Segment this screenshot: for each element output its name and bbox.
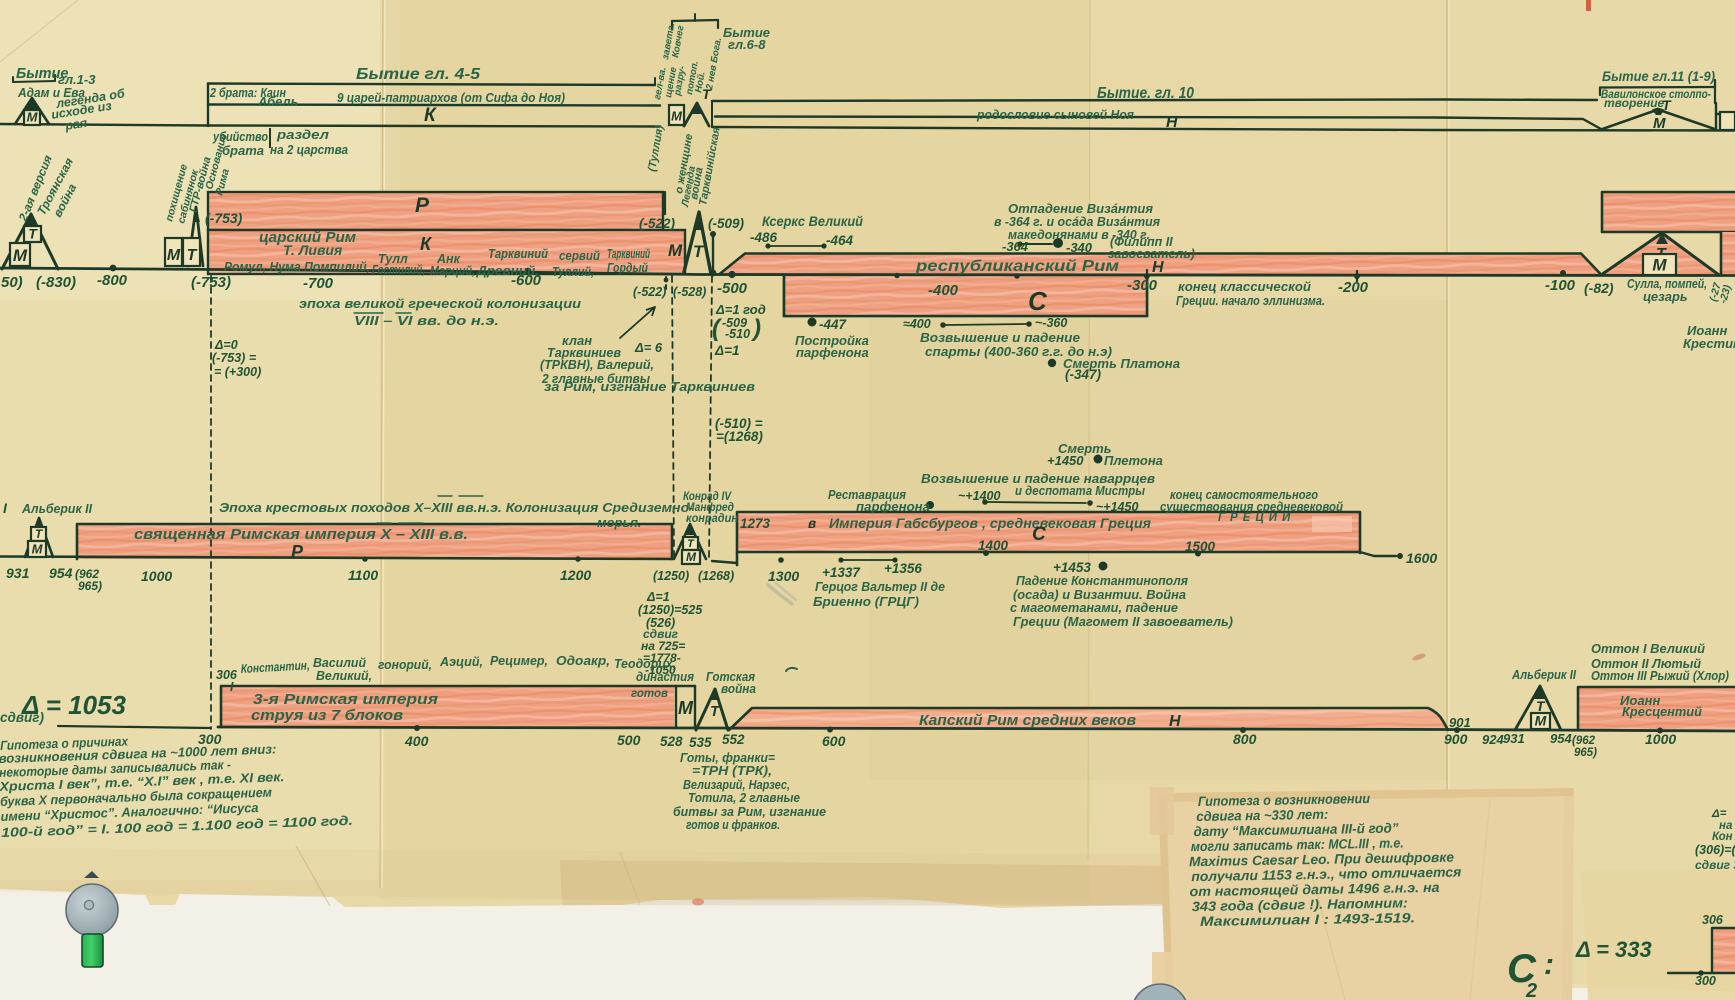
svg-text:Δ=0: Δ=0: [214, 338, 238, 352]
svg-text:800: 800: [1233, 731, 1257, 747]
svg-text::: :: [1544, 948, 1554, 981]
svg-text:война: война: [721, 682, 756, 696]
svg-text:-100: -100: [1545, 277, 1576, 294]
svg-text:М: М: [1653, 115, 1666, 132]
svg-text:священная Римская империя X –: священная Римская империя X – XIII в.в.: [134, 527, 468, 543]
svg-text:Великий,: Великий,: [316, 669, 372, 683]
svg-text:М: М: [1652, 255, 1667, 274]
svg-text:= (+300): = (+300): [214, 365, 261, 379]
svg-text:конец классической: конец классической: [1178, 279, 1311, 294]
svg-text:Одоакр,: Одоакр,: [556, 654, 610, 668]
svg-text:Теодорих,: Теодорих,: [614, 657, 676, 671]
svg-text:брата: брата: [222, 143, 264, 158]
svg-text:за Рим, изгнание Тарквиниев: за Рим, изгнание Тарквиниев: [544, 379, 755, 394]
svg-text:1000: 1000: [141, 568, 172, 584]
svg-text:+1356: +1356: [884, 561, 922, 576]
svg-text:901: 901: [1449, 715, 1471, 730]
svg-text:+1450: +1450: [1047, 453, 1084, 468]
svg-text:раздел: раздел: [276, 127, 329, 142]
svg-text:морья.: морья.: [597, 515, 641, 530]
svg-text:Н: Н: [1166, 114, 1178, 131]
svg-text:(-753): (-753): [191, 274, 231, 291]
svg-text:(-522): (-522): [639, 216, 676, 231]
svg-text:306: 306: [1702, 913, 1724, 927]
svg-text:сдвиг): сдвиг): [0, 710, 44, 725]
svg-text:эпоха великой греческой колони: эпоха великой греческой колонизации: [299, 296, 581, 311]
svg-text:М: М: [32, 541, 44, 556]
svg-text:-700: -700: [303, 275, 334, 292]
svg-text:Крестите: Крестите: [1683, 336, 1735, 351]
svg-text:(962: (962: [1572, 735, 1596, 747]
svg-text:Туллий,: Туллий,: [552, 265, 594, 279]
svg-text:Герцог Вальтер II де: Герцог Вальтер II де: [815, 579, 945, 594]
svg-text:1100: 1100: [348, 567, 378, 583]
svg-text:Ромул, Нума Помпилий,: Ромул, Нума Помпилий,: [224, 259, 370, 274]
svg-text:Т. Ливия: Т. Ливия: [283, 242, 342, 258]
svg-text:Н: Н: [1169, 713, 1181, 730]
svg-text:I: I: [230, 680, 234, 694]
svg-text:=(1268): =(1268): [716, 429, 763, 444]
svg-text:-447: -447: [819, 317, 848, 332]
svg-text:Δ= 6: Δ= 6: [634, 340, 663, 355]
svg-text:Оттон I Великий: Оттон I Великий: [1591, 641, 1705, 656]
svg-text:-500: -500: [717, 280, 748, 297]
svg-text:республиканский Рим: республиканский Рим: [915, 258, 1120, 275]
svg-text:Бытие. гл. 10: Бытие. гл. 10: [1097, 85, 1194, 102]
svg-text:-600: -600: [511, 272, 542, 289]
svg-text:сдвиг 3: сдвиг 3: [1695, 858, 1735, 872]
svg-text:М: М: [13, 246, 28, 265]
svg-text:1200: 1200: [560, 567, 591, 583]
svg-text:Δ = 333: Δ = 333: [1575, 937, 1652, 962]
svg-text:-800: -800: [97, 272, 128, 289]
svg-text:Т: Т: [28, 225, 38, 241]
svg-text:552: 552: [722, 732, 745, 747]
svg-text:гл.6-8: гл.6-8: [728, 37, 766, 52]
svg-text:-300: -300: [1127, 277, 1158, 294]
svg-text:конрадин: конрадин: [686, 511, 739, 525]
svg-text:3-я Римская империя: 3-я Римская империя: [253, 691, 438, 708]
svg-text:954: 954: [1550, 731, 1572, 746]
svg-text:готов и франков.: готов и франков.: [686, 817, 780, 832]
svg-text:М: М: [1535, 712, 1547, 728]
svg-text:(1250): (1250): [653, 569, 689, 583]
svg-text:~+1450: ~+1450: [1096, 500, 1138, 514]
svg-text:1273: 1273: [740, 516, 771, 531]
svg-text:-486: -486: [750, 230, 778, 245]
svg-text:Греции. начало эллинизма.: Греции. начало эллинизма.: [1176, 293, 1325, 308]
svg-text:готов: готов: [631, 688, 668, 700]
svg-text:-400: -400: [928, 282, 959, 299]
svg-text:Абель: Абель: [257, 94, 298, 109]
svg-text:Р: Р: [415, 194, 430, 217]
svg-text:на 2 царства: на 2 царства: [270, 142, 348, 157]
svg-text:954: 954: [49, 565, 73, 581]
svg-text:924: 924: [1482, 732, 1504, 747]
svg-text:Кресцентий: Кресцентий: [1622, 704, 1702, 719]
svg-text:VIII – VI вв. до н.э.: VIII – VI вв. до н.э.: [354, 313, 499, 328]
svg-text:2: 2: [1525, 980, 1537, 1000]
svg-text:=ТРН (ТРК),: =ТРН (ТРК),: [692, 763, 772, 778]
svg-text:1500: 1500: [1185, 539, 1216, 554]
svg-text:-464: -464: [826, 233, 854, 248]
svg-text:(ТРКВН), Валерий,: (ТРКВН), Валерий,: [540, 357, 654, 372]
svg-text:М: М: [167, 247, 181, 264]
svg-text:М: М: [671, 109, 683, 124]
svg-text:М: М: [27, 110, 39, 125]
svg-text:Бриенно (ГРЦГ): Бриенно (ГРЦГ): [813, 594, 919, 609]
svg-text:Рецимер,: Рецимер,: [490, 654, 548, 668]
svg-text:Р: Р: [291, 542, 304, 562]
svg-text:Δ=1: Δ=1: [714, 343, 739, 358]
svg-text:Эпоха крестовых походов X–XIII: Эпоха крестовых походов X–XIII вв.н.э. К…: [219, 500, 694, 515]
svg-text:Альберик II: Альберик II: [1511, 667, 1576, 682]
svg-text:Тарквиний: Тарквиний: [607, 247, 650, 261]
svg-text:900: 900: [1444, 731, 1468, 747]
svg-text:600: 600: [822, 733, 846, 749]
svg-text:306: 306: [216, 668, 238, 682]
svg-text:965): 965): [78, 579, 102, 593]
svg-text:931: 931: [6, 565, 30, 581]
svg-text:965): 965): [1574, 747, 1597, 759]
svg-text:Падение Константинополя: Падение Константинополя: [1016, 573, 1188, 588]
svg-text:М: М: [668, 241, 683, 260]
svg-text:-364: -364: [1002, 239, 1029, 254]
svg-text:и деспотата Мистры: и деспотата Мистры: [1015, 483, 1145, 498]
svg-text:М: М: [686, 550, 697, 564]
svg-text:(-753): (-753): [205, 210, 243, 226]
svg-text:Василий: Василий: [313, 656, 366, 670]
svg-text:Гордый: Гордый: [607, 261, 648, 275]
svg-text:С: С: [1028, 286, 1048, 316]
svg-text:Н: Н: [1152, 259, 1164, 276]
svg-text:~-360: ~-360: [1035, 316, 1067, 330]
svg-text:Плетона: Плетона: [1104, 453, 1163, 468]
svg-text:(1250)=525: (1250)=525: [638, 603, 703, 617]
svg-text:Кон: Кон: [1712, 831, 1733, 843]
svg-text:528: 528: [660, 734, 683, 749]
svg-text:Аэций,: Аэций,: [439, 655, 483, 669]
svg-text:9 царей-патриархов (от Сифа до: 9 царей-патриархов (от Сифа до Ноя): [337, 90, 565, 105]
svg-text:Греции (Магомет II завоевател: Греции (Магомет II завоеватель): [1013, 614, 1233, 629]
svg-text:Возвышение и падение: Возвышение и падение: [920, 330, 1080, 345]
svg-text:Марций,: Марций,: [430, 264, 475, 278]
svg-text:Гостилий,: Гостилий,: [372, 263, 425, 277]
svg-text:931: 931: [1503, 731, 1525, 746]
svg-text:1600: 1600: [1406, 550, 1437, 566]
svg-text:творение: творение: [1604, 96, 1665, 110]
svg-text:Альберик II: Альберик II: [21, 501, 92, 516]
svg-text:К: К: [424, 105, 437, 126]
svg-text:династия: династия: [636, 670, 695, 684]
svg-text:50): 50): [1, 274, 23, 291]
svg-text:Капский Рим средних веков: Капский Рим средних веков: [919, 712, 1136, 729]
svg-text:~+1400: ~+1400: [958, 489, 1000, 503]
svg-text:Тотила, 2 главные: Тотила, 2 главные: [688, 790, 800, 805]
svg-text:500: 500: [617, 732, 641, 748]
svg-text:400: 400: [404, 733, 429, 749]
svg-text:-340: -340: [1066, 240, 1093, 255]
svg-text:парфенона: парфенона: [856, 499, 930, 514]
svg-text:535: 535: [689, 735, 712, 750]
svg-text:Т: Т: [187, 247, 198, 264]
svg-text:Бытие гл.11 (1-9): Бытие гл.11 (1-9): [1602, 69, 1715, 84]
svg-text:гонорий,: гонорий,: [378, 658, 432, 672]
svg-text:Оттон III Рыжий (Хлор): Оттон III Рыжий (Хлор): [1591, 668, 1729, 683]
svg-text:цезарь: цезарь: [1643, 289, 1688, 304]
svg-text:(-528): (-528): [673, 285, 706, 299]
svg-text:(-347): (-347): [1065, 367, 1102, 382]
svg-text:в: в: [808, 516, 816, 531]
svg-text:Империя Габсбургов , средневе: Империя Габсбургов , средневековая Греци…: [829, 515, 1151, 531]
svg-text:Гипотеза о возникновении: Гипотеза о возникновении: [1198, 791, 1371, 809]
svg-text:Бытие гл. 4-5: Бытие гл. 4-5: [356, 66, 481, 83]
svg-text:(1268): (1268): [698, 569, 734, 583]
svg-text:Тарквиний: Тарквиний: [488, 247, 548, 261]
svg-text:(-509): (-509): [708, 216, 745, 231]
svg-text:с магометанами, падение: с магометанами, падение: [1010, 600, 1178, 615]
svg-text:сервий: сервий: [559, 249, 600, 263]
svg-text:родословие сыновей Ноя: родословие сыновей Ноя: [976, 107, 1134, 122]
svg-text:Т: Т: [1662, 97, 1672, 113]
svg-text:Δ=: Δ=: [1711, 808, 1727, 820]
svg-text:С: С: [1032, 524, 1046, 545]
svg-text:(-82): (-82): [1584, 280, 1614, 296]
svg-text:1000: 1000: [1645, 731, 1676, 747]
svg-text:(-830): (-830): [36, 274, 76, 291]
svg-text:≈400: ≈400: [903, 317, 931, 331]
svg-text:М: М: [678, 698, 694, 718]
svg-text:Т: Т: [693, 242, 705, 261]
svg-text:Ксеркс Великий: Ксеркс Великий: [762, 213, 863, 229]
svg-text:К: К: [420, 234, 433, 254]
svg-text:Δ=1: Δ=1: [646, 590, 670, 604]
svg-text:1300: 1300: [768, 568, 799, 584]
svg-text:-200: -200: [1338, 279, 1369, 296]
svg-text:(306)=(: (306)=(: [1695, 843, 1735, 857]
svg-text:струя из 7 блоков: струя из 7 блоков: [251, 707, 403, 724]
svg-text:(-522): (-522): [633, 285, 666, 299]
svg-text:1400: 1400: [978, 538, 1009, 553]
svg-text:-510: -510: [725, 327, 750, 341]
svg-text:парфенона: парфенона: [796, 345, 869, 360]
svg-text:ГРЕЦИИ: ГРЕЦИИ: [1218, 512, 1295, 524]
svg-text:(-753) =: (-753) =: [212, 351, 257, 365]
svg-text:+1337: +1337: [822, 565, 861, 580]
svg-text:300: 300: [1695, 974, 1716, 988]
